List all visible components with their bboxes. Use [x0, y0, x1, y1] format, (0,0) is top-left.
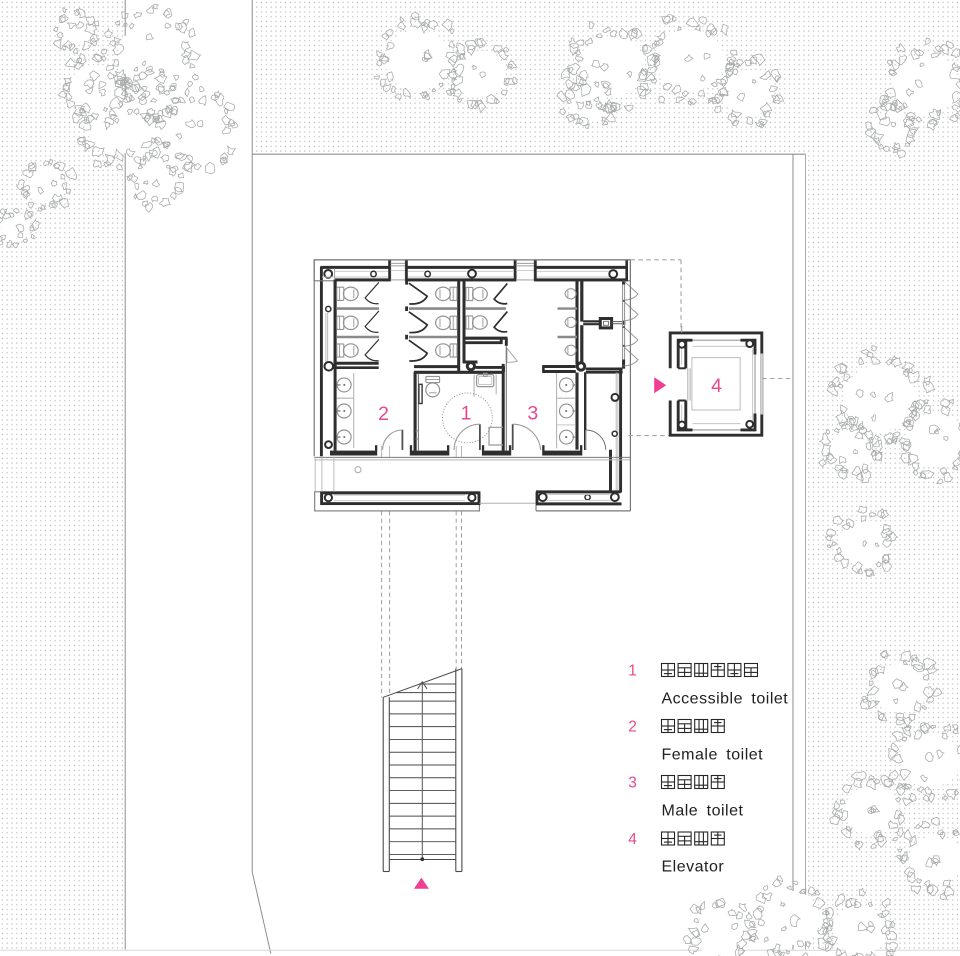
svg-text:2: 2 [378, 403, 389, 425]
svg-text:Accessible toilet: Accessible toilet [662, 690, 789, 707]
svg-text:1: 1 [461, 403, 472, 425]
svg-text:3: 3 [527, 403, 538, 425]
svg-text:4: 4 [628, 831, 637, 848]
svg-text:3: 3 [628, 774, 637, 791]
svg-text:Female toilet: Female toilet [662, 746, 764, 763]
svg-text:4: 4 [711, 375, 722, 397]
svg-text:2: 2 [628, 718, 637, 735]
svg-text:1: 1 [628, 662, 637, 679]
svg-text:Male toilet: Male toilet [662, 802, 744, 819]
svg-text:Elevator: Elevator [662, 858, 725, 875]
